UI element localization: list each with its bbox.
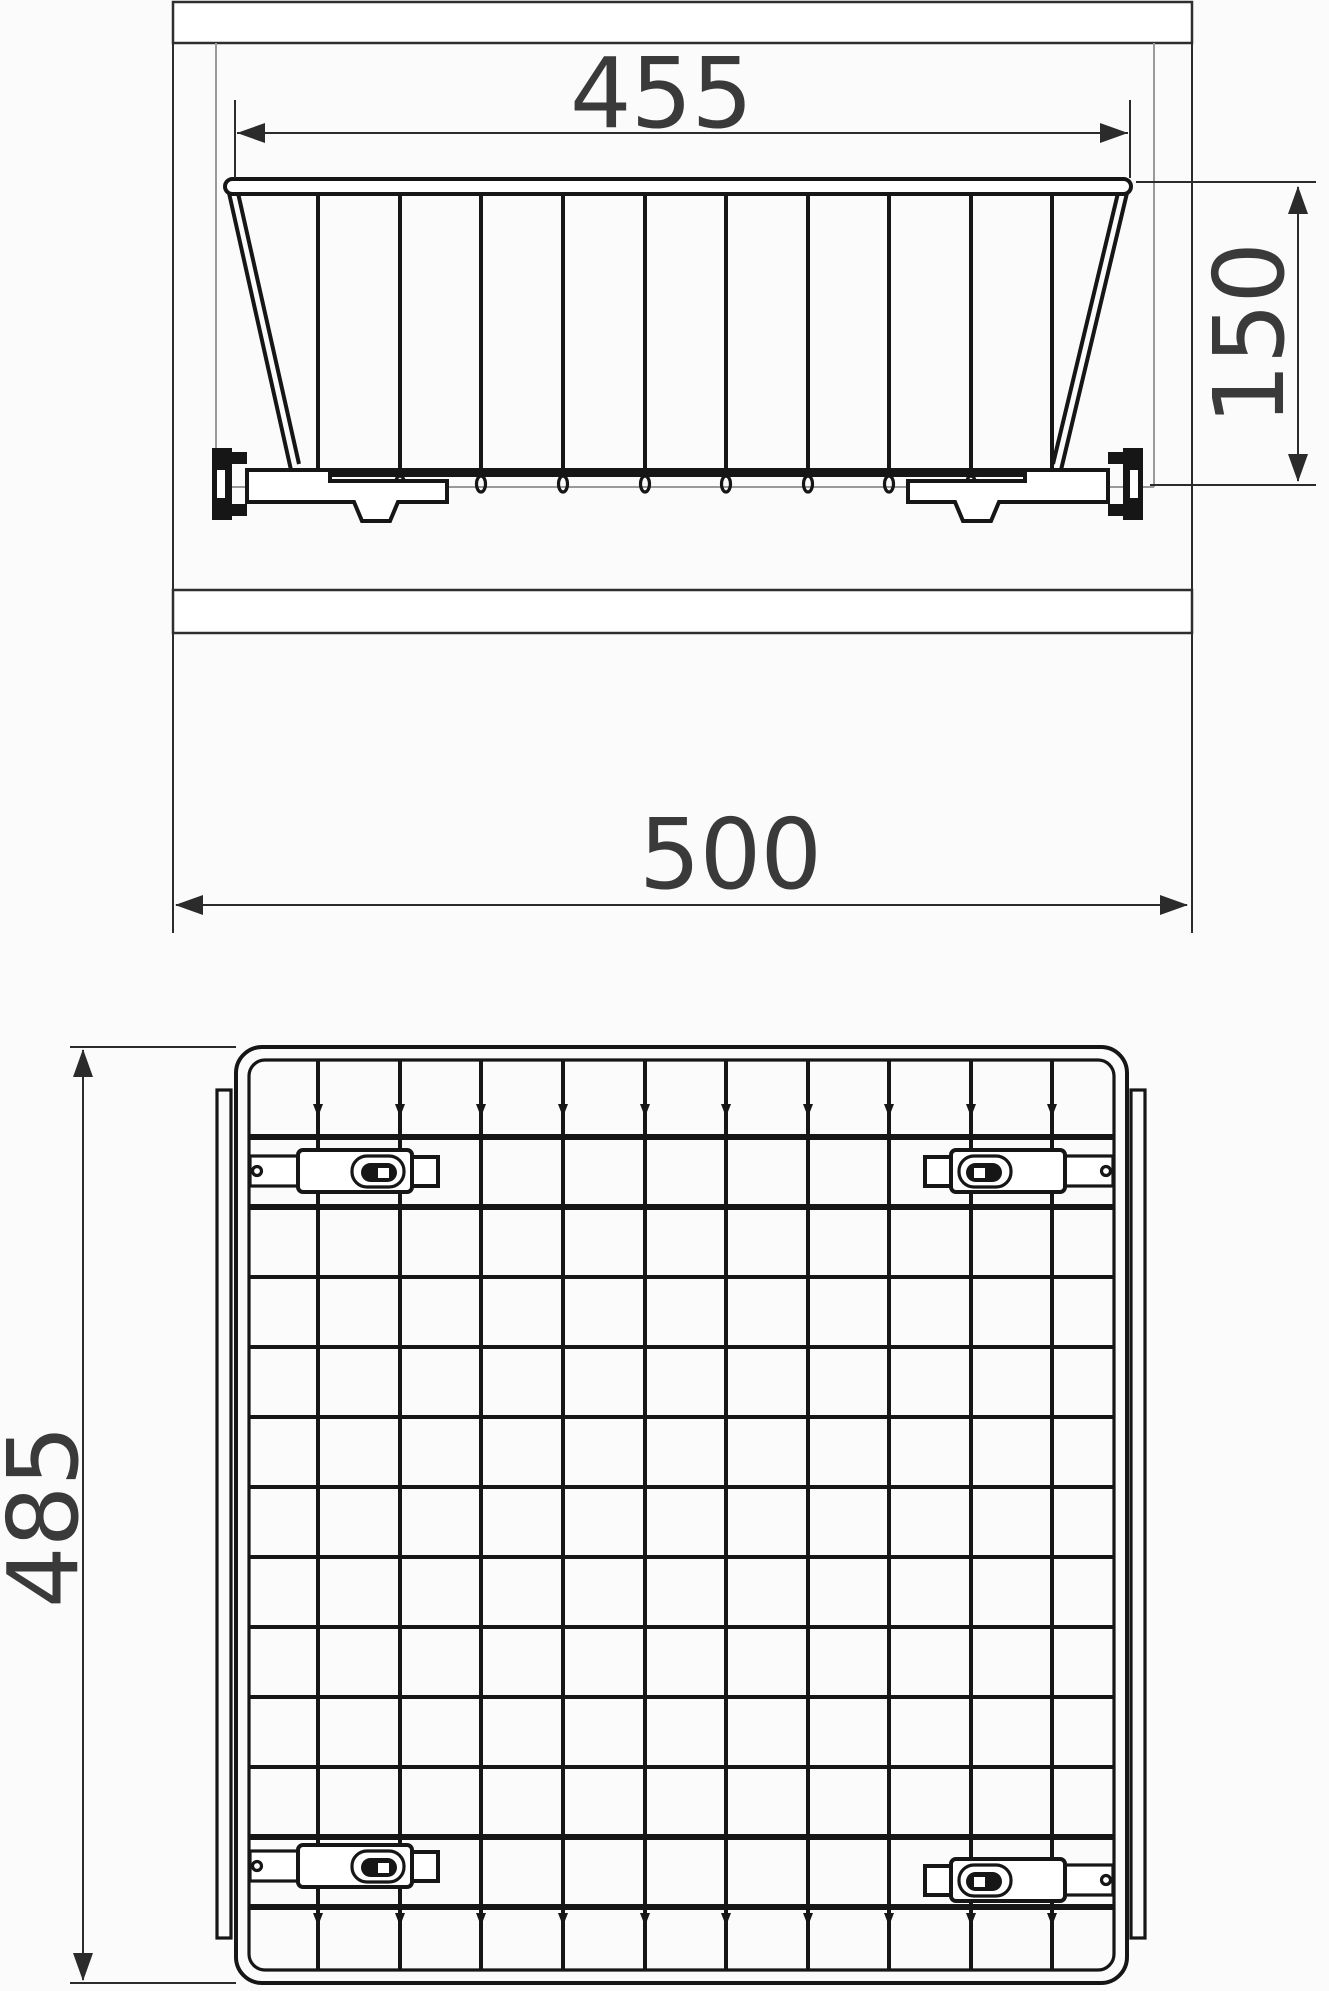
- basket-front-vertical-wires: [318, 193, 1052, 476]
- left-clamp-top-lip: [230, 452, 247, 464]
- dim-label-height: 150: [1193, 243, 1306, 425]
- basket-right-wall-inner-wire: [1053, 193, 1118, 464]
- basket-bottom-rail: [293, 468, 1063, 477]
- cabinet-shelf-panel: [173, 590, 1192, 633]
- clip-top-right: [925, 1150, 1113, 1192]
- arrow-down-icon: [73, 1953, 93, 1981]
- technical-drawing: 455 150 500: [0, 0, 1329, 1991]
- right-runner: [908, 448, 1143, 521]
- arrow-right-icon: [1100, 123, 1128, 143]
- plan-vertical-wires: [318, 1061, 1052, 1969]
- right-clamp-top-lip: [1108, 452, 1125, 464]
- right-clamp-slot: [1130, 470, 1138, 498]
- arrow-up-icon: [1288, 186, 1308, 214]
- clip-bottom-left: [250, 1845, 438, 1887]
- left-runner-arm: [247, 470, 447, 521]
- basket-front: [225, 179, 1131, 492]
- plan-horizontal-wires: [250, 1137, 1113, 1907]
- dimension-top-width: 455: [235, 37, 1130, 178]
- right-slide-rail: [1131, 1090, 1145, 1938]
- left-slide-rail: [217, 1090, 231, 1938]
- left-clamp-slot: [217, 470, 225, 498]
- dim-label-depth: 485: [0, 1426, 100, 1608]
- arrow-up-icon: [73, 1049, 93, 1077]
- basket-left-wall-inner-wire: [238, 193, 299, 464]
- right-runner-arm: [908, 470, 1108, 521]
- plan-rim-inner: [249, 1060, 1114, 1970]
- basket-left-wall-outer-wire: [229, 193, 291, 470]
- left-clamp-bottom-lip: [230, 504, 247, 516]
- dim-label-overall-width: 500: [639, 798, 821, 911]
- top-plan-view: 485: [0, 1047, 1145, 1983]
- arrow-left-icon: [175, 895, 203, 915]
- left-runner: [212, 448, 447, 521]
- arrow-down-icon: [1288, 454, 1308, 482]
- basket-right-wall-outer-wire: [1061, 193, 1127, 470]
- dim-label-top-width: 455: [570, 37, 752, 150]
- dimension-overall-width: 500: [175, 798, 1188, 915]
- right-clamp-bottom-lip: [1108, 504, 1125, 516]
- front-elevation-view: 455 150 500: [173, 2, 1316, 933]
- drawing-sheet: 455 150 500: [0, 0, 1329, 1991]
- arrow-left-icon: [237, 123, 265, 143]
- clip-top-left: [250, 1150, 438, 1192]
- basket-top-rim: [225, 179, 1131, 194]
- plan-wire-end-ticks: [313, 1104, 1057, 1926]
- clip-bottom-right: [925, 1859, 1113, 1901]
- dimension-height: 150: [1136, 182, 1316, 485]
- arrow-right-icon: [1160, 895, 1188, 915]
- dimension-depth: 485: [0, 1047, 236, 1983]
